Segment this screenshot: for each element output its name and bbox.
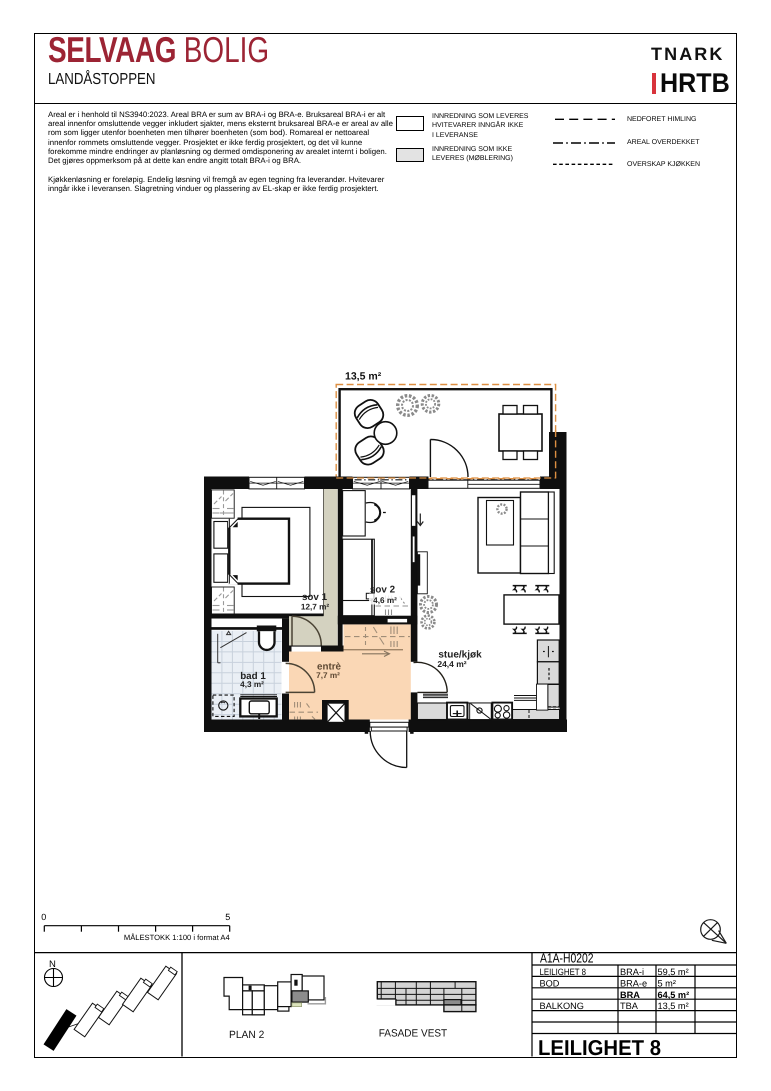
svg-text:sov 1: sov 1 bbox=[302, 592, 328, 603]
svg-text:24,4 m²: 24,4 m² bbox=[437, 659, 466, 669]
svg-text:TBA: TBA bbox=[620, 1001, 639, 1011]
svg-text:A1A-H0202: A1A-H0202 bbox=[540, 951, 594, 966]
svg-text:7,7 m²: 7,7 m² bbox=[316, 671, 340, 680]
svg-text:BRA-i: BRA-i bbox=[620, 967, 644, 977]
svg-text:BRA: BRA bbox=[620, 990, 640, 1000]
svg-text:0: 0 bbox=[41, 912, 46, 922]
svg-text:LEILIGHET 8: LEILIGHET 8 bbox=[540, 967, 587, 977]
svg-text:5 m²: 5 m² bbox=[658, 978, 676, 988]
svg-text:PLAN 2: PLAN 2 bbox=[229, 1029, 264, 1041]
svg-text:12,7 m²: 12,7 m² bbox=[301, 603, 329, 612]
svg-text:13,5 m²: 13,5 m² bbox=[658, 1001, 689, 1011]
svg-text:FASADE VEST: FASADE VEST bbox=[379, 1028, 448, 1040]
svg-text:BALKONG: BALKONG bbox=[540, 1001, 584, 1011]
svg-text:4,6 m²: 4,6 m² bbox=[373, 596, 397, 605]
svg-text:BRA-e: BRA-e bbox=[620, 978, 647, 988]
svg-text:4,3 m²: 4,3 m² bbox=[240, 680, 264, 689]
svg-text:5: 5 bbox=[225, 912, 230, 922]
svg-text:59,5 m²: 59,5 m² bbox=[658, 967, 689, 977]
svg-text:13,5 m²: 13,5 m² bbox=[345, 371, 382, 383]
svg-text:LEILIGHET 8: LEILIGHET 8 bbox=[538, 1036, 661, 1060]
svg-text:MÅLESTOKK 1:100 i format A4: MÅLESTOKK 1:100 i format A4 bbox=[124, 933, 230, 942]
svg-text:64,5 m²: 64,5 m² bbox=[658, 990, 690, 1000]
svg-text:BOD: BOD bbox=[540, 978, 560, 988]
